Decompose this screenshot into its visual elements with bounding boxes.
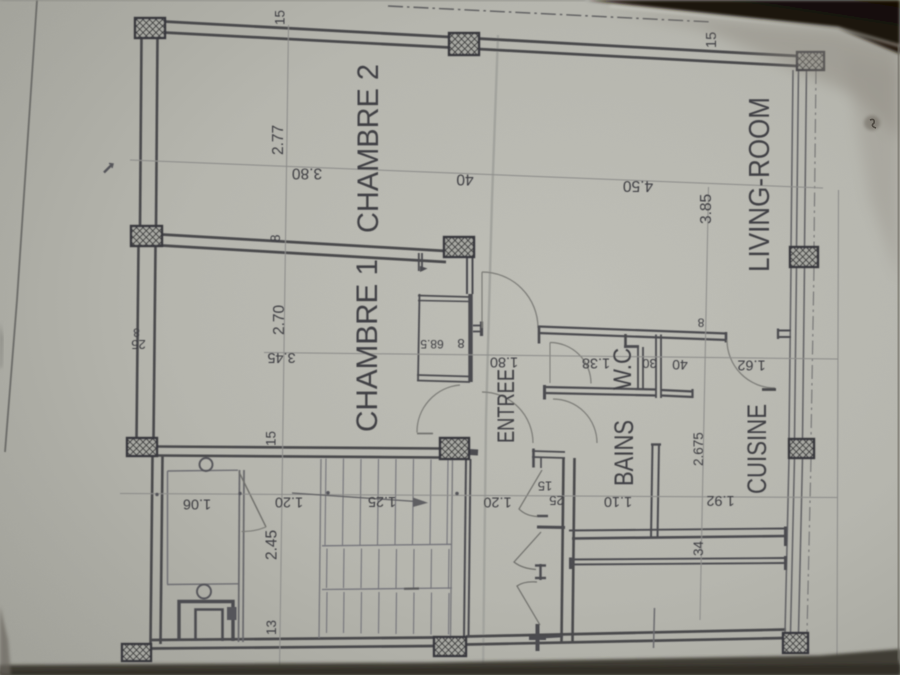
svg-text:CUISINE: CUISINE (742, 404, 772, 494)
svg-text:1.06: 1.06 (183, 496, 211, 512)
svg-text:15: 15 (273, 10, 288, 25)
svg-text:BAINS: BAINS (609, 420, 639, 486)
svg-text:40: 40 (672, 357, 688, 373)
svg-text:3.45: 3.45 (267, 349, 295, 365)
svg-text:8: 8 (457, 336, 464, 351)
svg-text:1.38: 1.38 (582, 355, 610, 371)
svg-text:1.20: 1.20 (275, 494, 303, 510)
svg-text:40: 40 (456, 171, 474, 188)
svg-text:3.85: 3.85 (698, 194, 715, 224)
svg-text:ENTREE: ENTREE (493, 369, 520, 443)
svg-text:2.77: 2.77 (270, 125, 287, 155)
svg-text:15: 15 (538, 479, 552, 494)
svg-text:8: 8 (697, 316, 704, 330)
svg-text:8: 8 (268, 234, 283, 242)
svg-text:1.20: 1.20 (483, 494, 511, 510)
svg-text:1.62: 1.62 (737, 357, 765, 373)
svg-text:CHAMBRE 1: CHAMBRE 1 (351, 259, 384, 432)
svg-text:3.80: 3.80 (292, 165, 323, 182)
svg-text:2.45: 2.45 (264, 530, 281, 560)
svg-text:W.C: W.C (609, 348, 637, 390)
svg-text:30: 30 (642, 356, 656, 371)
svg-text:25: 25 (549, 493, 563, 508)
svg-text:8: 8 (133, 326, 140, 340)
svg-text:13: 13 (264, 620, 279, 635)
svg-text:1.92: 1.92 (706, 492, 734, 508)
svg-text:1.10: 1.10 (604, 493, 632, 509)
svg-text:1.25: 1.25 (368, 493, 396, 509)
svg-text:1.80: 1.80 (490, 354, 518, 370)
svg-text:4.50: 4.50 (623, 177, 654, 194)
svg-text:34: 34 (691, 540, 706, 556)
svg-text:15: 15 (264, 431, 279, 446)
svg-text:2.70: 2.70 (271, 304, 288, 335)
svg-text:2.675: 2.675 (691, 432, 706, 466)
svg-text:LIVING-ROOM: LIVING-ROOM (744, 97, 776, 272)
svg-text:CHAMBRE 2: CHAMBRE 2 (352, 64, 385, 233)
svg-text:68.5: 68.5 (420, 337, 444, 351)
